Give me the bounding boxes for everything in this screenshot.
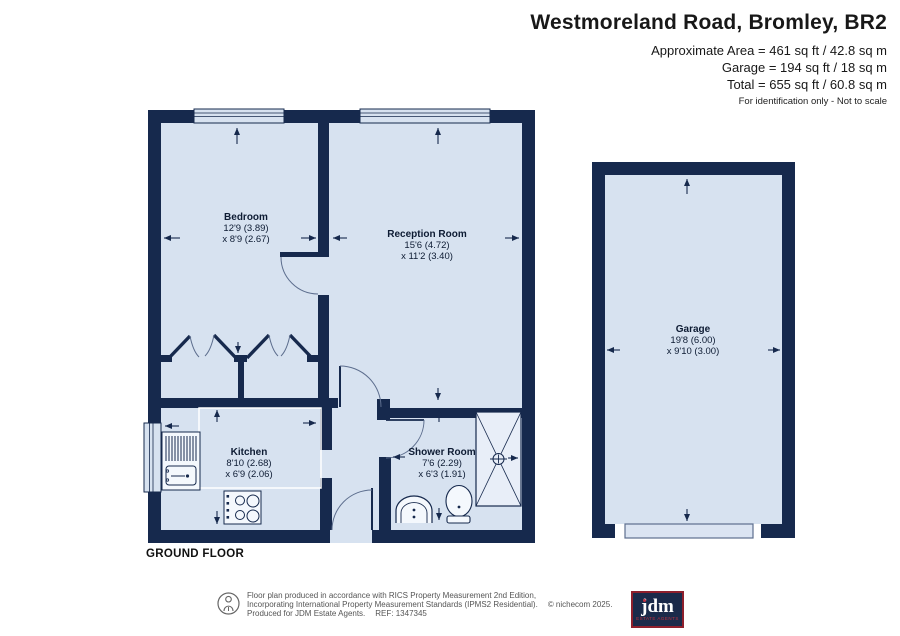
approximate-area: Approximate Area = 461 sq ft / 42.8 sq m bbox=[530, 42, 887, 59]
room-dim: x 11'2 (3.40) bbox=[387, 251, 466, 262]
reception-label: Reception Room 15'6 (4.72) x 11'2 (3.40) bbox=[387, 229, 466, 262]
room-name: Shower Room bbox=[408, 447, 475, 458]
room-dim: 15'6 (4.72) bbox=[387, 240, 466, 251]
room-dim: x 6'9 (2.06) bbox=[225, 469, 272, 480]
jdm-logo-word: jdm bbox=[641, 598, 674, 615]
shower-tray bbox=[476, 412, 521, 506]
jdm-logo-dot bbox=[643, 599, 646, 602]
bedroom-window bbox=[194, 109, 284, 123]
disclaimer-note: For identification only - Not to scale bbox=[530, 96, 887, 107]
main-flat bbox=[144, 109, 535, 543]
shower-room-label: Shower Room 7'6 (2.29) x 6'3 (1.91) bbox=[408, 447, 475, 480]
footer-copyright: © nichecom 2025. bbox=[548, 601, 613, 610]
footer-line-3: Produced for JDM Estate Agents. bbox=[247, 610, 365, 619]
garage-door bbox=[625, 524, 753, 538]
room-name: Kitchen bbox=[225, 447, 272, 458]
reception-window bbox=[360, 109, 490, 123]
garage-area: Garage = 194 sq ft / 18 sq m bbox=[530, 59, 887, 76]
room-name: Reception Room bbox=[387, 229, 466, 240]
footer-ref: REF: 1347345 bbox=[375, 610, 427, 619]
person-icon bbox=[217, 591, 241, 617]
room-dim: 8'10 (2.68) bbox=[225, 458, 272, 469]
fridge-sink-unit bbox=[162, 432, 200, 490]
room-name: Bedroom bbox=[222, 212, 269, 223]
room-dim: 7'6 (2.29) bbox=[408, 458, 475, 469]
room-dim: x 8'9 (2.67) bbox=[222, 234, 269, 245]
room-dim: 12'9 (3.89) bbox=[222, 223, 269, 234]
room-dim: 19'8 (6.00) bbox=[667, 335, 720, 346]
hob bbox=[224, 491, 261, 524]
room-name: Garage bbox=[667, 324, 720, 335]
footer-disclaimer: Floor plan produced in accordance with R… bbox=[247, 592, 612, 618]
area-summary: Approximate Area = 461 sq ft / 42.8 sq m… bbox=[530, 42, 887, 93]
floor-title: GROUND FLOOR bbox=[146, 548, 244, 560]
garage-label: Garage 19'8 (6.00) x 9'10 (3.00) bbox=[667, 324, 720, 357]
total-area: Total = 655 sq ft / 60.8 sq m bbox=[530, 76, 887, 93]
jdm-logo: jdm ESTATE AGENTS bbox=[631, 591, 684, 628]
floorplan-page: Westmoreland Road, Bromley, BR2 Approxim… bbox=[0, 0, 900, 636]
bedroom-label: Bedroom 12'9 (3.89) x 8'9 (2.67) bbox=[222, 212, 269, 245]
room-dim: x 6'3 (1.91) bbox=[408, 469, 475, 480]
kitchen-window bbox=[144, 423, 161, 492]
kitchen-label: Kitchen 8'10 (2.68) x 6'9 (2.06) bbox=[225, 447, 272, 480]
basin bbox=[396, 496, 432, 523]
room-dim: x 9'10 (3.00) bbox=[667, 346, 720, 357]
header: Westmoreland Road, Bromley, BR2 Approxim… bbox=[530, 11, 887, 107]
jdm-logo-text: jdm bbox=[641, 596, 674, 617]
page-title: Westmoreland Road, Bromley, BR2 bbox=[530, 11, 887, 35]
toilet bbox=[446, 486, 472, 524]
